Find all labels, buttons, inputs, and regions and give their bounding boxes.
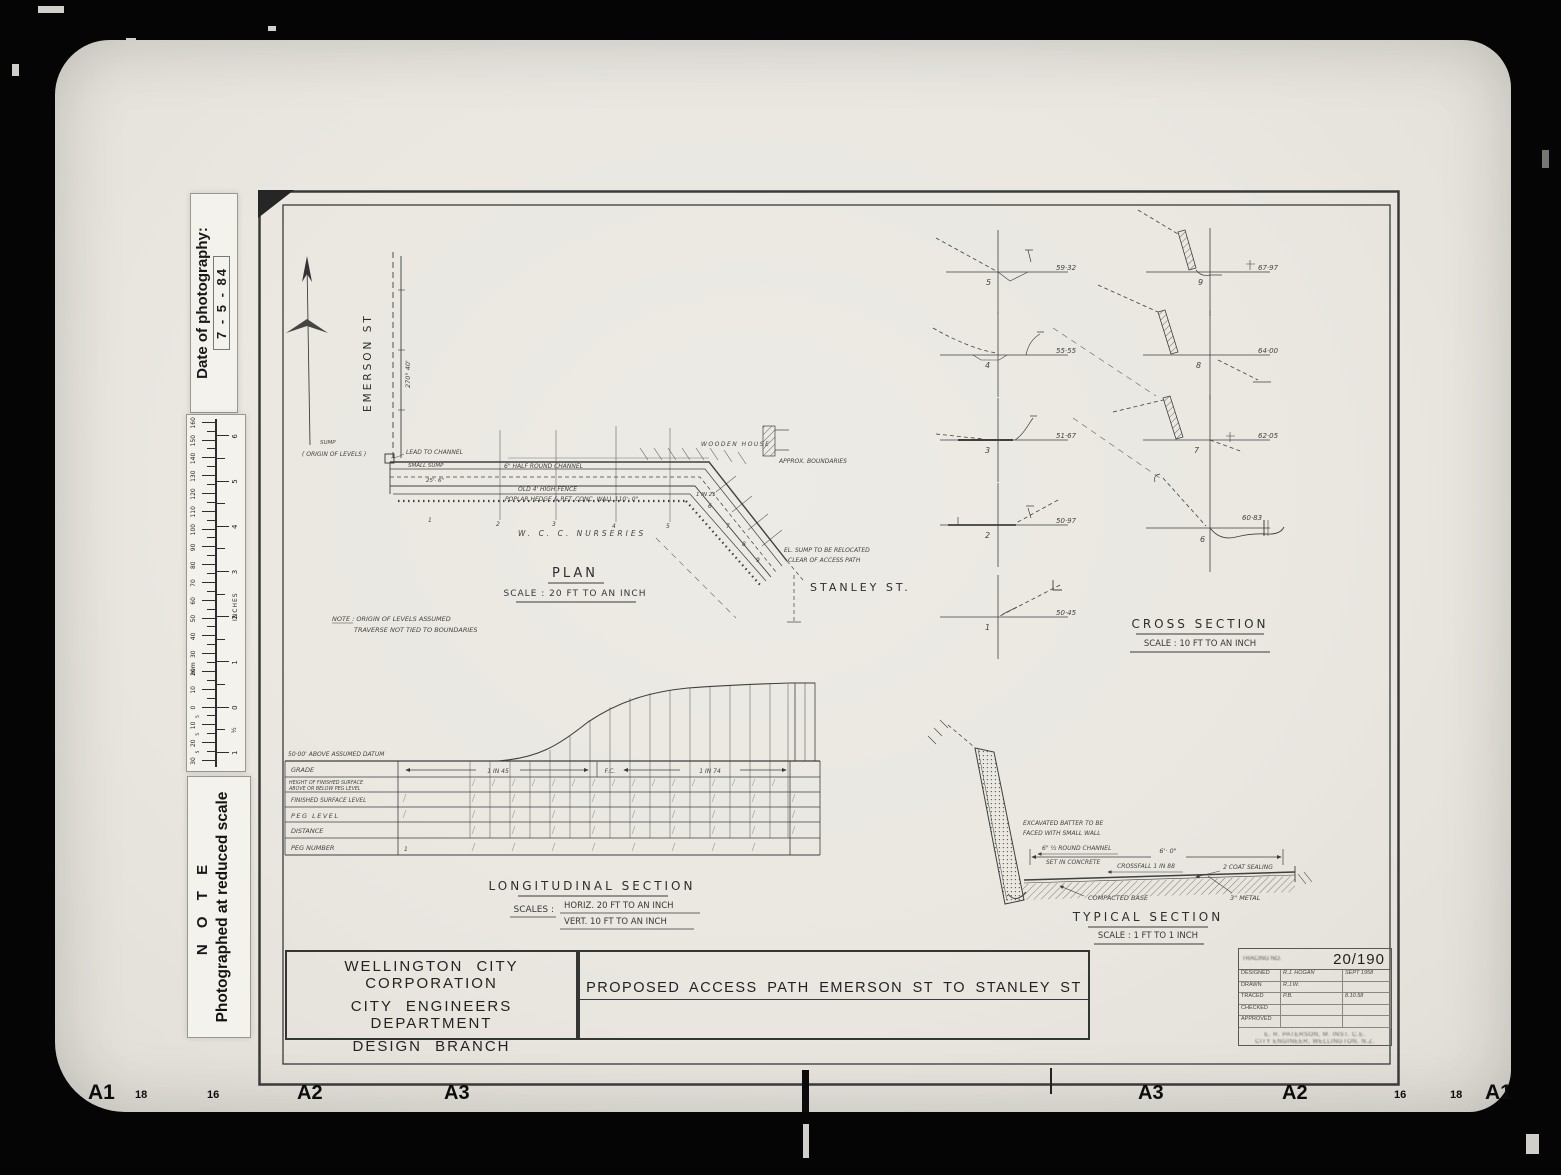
edge-marker: A2 — [1282, 1082, 1308, 1105]
ruler-tick — [207, 501, 215, 502]
ruler-tick: 4 — [231, 524, 239, 528]
plan-linework — [286, 252, 803, 622]
ruler-tick — [202, 760, 215, 761]
row-value: P.B. — [1281, 993, 1343, 1004]
ruler-tick: 2 — [231, 614, 239, 618]
ruler-tick — [202, 599, 215, 600]
row-label: CHECKED — [1239, 1005, 1281, 1016]
plan-labels: EMERSON ST 270° 40' SUMP ( ORIGIN OF LEV… — [302, 313, 911, 634]
ruler-tick — [207, 537, 215, 538]
wooden-house-label: WOODEN HOUSE — [701, 441, 770, 448]
emerson-st-label: EMERSON ST — [362, 313, 374, 412]
ruler-tick — [217, 729, 225, 730]
channel-label-2: SET IN CONCRETE — [1046, 859, 1101, 866]
sump-label: SUMP — [320, 440, 336, 446]
tracing-no-label: TRACING NO. — [1242, 956, 1333, 962]
plan-marker-9: 9 — [756, 557, 760, 564]
row-label: APPROVED — [1239, 1016, 1281, 1027]
cs9-no: 9 — [1198, 278, 1203, 287]
ruler-tick — [217, 616, 229, 617]
ruler-tick: 120 — [190, 488, 197, 499]
ruler-tick — [207, 590, 215, 591]
ruler-tick: 110 — [190, 506, 197, 517]
row-date: 8.10.58 — [1343, 993, 1391, 1004]
small-sump-label: SMALL SUMP — [408, 463, 444, 469]
edge-marker: A3 — [444, 1082, 470, 1105]
date-stamp-value: 7 - 5 - 84 — [213, 256, 230, 350]
ruler-tick — [207, 519, 215, 520]
edge-marker: A2 — [297, 1082, 323, 1105]
row-value — [1281, 1016, 1343, 1027]
longitudinal-text: 50·00' ABOVE ASSUMED DATUM GRADE HEIGHT … — [288, 751, 721, 929]
crossfall-label: CROSSFALL 1 IN 88 — [1117, 863, 1175, 870]
scale-ruler: mm INCHES 305205105010203040506070809010… — [185, 413, 246, 772]
ruler-tick: 5 — [196, 715, 201, 718]
row-value — [1281, 1005, 1343, 1016]
ruler-tick — [207, 555, 215, 556]
cs3-no: 3 — [985, 446, 990, 455]
sump-relocated-label-1: EL. SUMP TO BE RELOCATED — [784, 547, 870, 554]
tracing-row: TRACEDP.B.8.10.58 — [1239, 993, 1391, 1005]
ruler-tick: 5 — [231, 479, 239, 483]
cross-sections-text: 5 59·32 4 55·55 3 51·67 2 50·97 1 50·45 … — [985, 264, 1279, 652]
title-block-organisation: WELLINGTON CITY CORPORATION CITY ENGINEE… — [285, 950, 578, 1040]
sump-relocated-label-2: CLEAR OF ACCESS PATH — [788, 557, 861, 564]
ruler-tick: 70 — [190, 579, 197, 587]
longitudinal-linework — [285, 683, 820, 855]
ruler-tick — [217, 525, 229, 526]
typical-linework — [928, 720, 1312, 904]
ruler-tick: 50 — [190, 614, 197, 622]
row-label: TRACED — [1239, 993, 1281, 1004]
ruler-tick — [202, 564, 215, 565]
grade-1in74: 1 IN 74 — [699, 768, 721, 775]
plan-marker-3: 3 — [552, 521, 556, 528]
ruler-tick — [202, 493, 215, 494]
ruler-tick — [202, 421, 215, 422]
ruler-tick — [202, 724, 215, 725]
ruler-tick — [207, 430, 215, 431]
note-stamp-text: Photographed at reduced scale — [214, 777, 232, 1037]
org-line-2: CITY ENGINEERS DEPARTMENT — [287, 998, 576, 1032]
tracing-row: CHECKED — [1239, 1005, 1391, 1017]
batter-label-2: FACED WITH SMALL WALL — [1023, 830, 1101, 837]
ruler-tick — [207, 626, 215, 627]
note-stamp-title: N O T E — [194, 777, 211, 1037]
ruler-tick: 140 — [190, 452, 197, 463]
ruler-tick — [202, 653, 215, 654]
first-peg-number: 1 — [404, 846, 408, 853]
cross-section-scale: SCALE : 10 FT TO AN INCH — [1144, 639, 1256, 649]
ruler-tick — [202, 635, 215, 636]
corner-fold-mark — [258, 190, 294, 218]
ruler-tick: 0 — [190, 705, 197, 709]
ruler-tick: 0 — [231, 705, 239, 709]
org-line-3: DESIGN BRANCH — [287, 1038, 576, 1055]
edge-marker: 18 — [135, 1089, 147, 1101]
tracing-footer-2: CITY ENGINEER, WELLINGTON, N.Z. — [1239, 1039, 1391, 1045]
ruler-tick — [217, 548, 225, 549]
note-stamp: N O T E Photographed at reduced scale — [186, 776, 251, 1038]
ruler-tick: 10 — [190, 721, 197, 729]
ruler-tick — [217, 457, 225, 458]
ruler-tick: 5 — [196, 750, 201, 753]
longitudinal-scale-vert: VERT. 10 FT TO AN INCH — [564, 917, 667, 927]
ruler-tick — [202, 706, 215, 707]
old-fence-label: OLD 4' HIGH FENCE — [518, 486, 577, 493]
tracing-row: DRAWNR.J.W. — [1239, 982, 1391, 994]
row-peg-level: PEG LEVEL — [291, 812, 340, 820]
tracing-row: APPROVED — [1239, 1016, 1391, 1028]
tracing-footer-1: E. R. PATERSON, M. INST. C.E. — [1239, 1032, 1391, 1038]
row-peg-number: PEG NUMBER — [291, 844, 334, 852]
row-label: DRAWN — [1239, 982, 1281, 993]
photograph-paper: Date of photography: 7 - 5 - 84 mm INCHE… — [55, 40, 1511, 1112]
row-date — [1343, 982, 1391, 993]
base-label: COMPACTED BASE — [1088, 894, 1149, 902]
ruler-tick: 150 — [190, 434, 197, 445]
ruler-tick: 80 — [190, 561, 197, 569]
film-speck — [803, 1124, 809, 1158]
tracing-row: DESIGNEDR.J. HOGANSEPT 1958 — [1239, 970, 1391, 982]
ruler-tick: 40 — [190, 632, 197, 640]
cs9-level: 67·97 — [1258, 264, 1279, 272]
edge-marker: A1 — [88, 1081, 115, 1105]
grade-1in21-label: 1 IN 21 — [696, 492, 716, 498]
dim-25-label: 25'· 6" — [426, 478, 444, 484]
ruler-tick — [207, 644, 215, 645]
plan-marker-2: 2 — [496, 521, 500, 528]
cs4-no: 4 — [985, 361, 990, 370]
ruler-tick — [202, 546, 215, 547]
row-distance: DISTANCE — [291, 827, 324, 835]
plan-note-1: NOTE : ORIGIN OF LEVELS ASSUMED — [332, 615, 451, 623]
date-stamp: Date of photography: 7 - 5 - 84 — [190, 194, 238, 412]
ruler-edge — [215, 419, 217, 767]
cs4-level: 55·55 — [1056, 347, 1077, 355]
ruler-tick: 160 — [190, 417, 197, 428]
film-speck — [268, 26, 276, 31]
grade-fc: F.C. — [605, 768, 616, 775]
ruler-tick — [207, 662, 215, 663]
dim-6ft-label: 6'· 0" — [1159, 847, 1176, 855]
cs7-no: 7 — [1194, 446, 1200, 455]
ruler-tick: 90 — [190, 543, 197, 551]
ruler-tick — [207, 751, 215, 752]
edge-marker: A3 — [1138, 1082, 1164, 1105]
stanley-st-label: STANLEY ST. — [810, 581, 911, 594]
row-date: SEPT 1958 — [1343, 970, 1391, 981]
photographed-drawing: Date of photography: 7 - 5 - 84 mm INCHE… — [0, 0, 1561, 1175]
cs5-no: 5 — [986, 278, 991, 287]
metal-label: 3" METAL — [1230, 894, 1261, 902]
ruler-tick — [202, 439, 215, 440]
typical-title: TYPICAL SECTION — [1072, 910, 1223, 924]
channel-label-1: 6" ½ ROUND CHANNEL — [1042, 845, 1111, 852]
ruler-tick — [217, 503, 225, 504]
ruler-tick — [217, 751, 229, 752]
origin-of-levels-label: ( ORIGIN OF LEVELS ) — [302, 451, 366, 458]
typical-scale: SCALE : 1 FT TO 1 INCH — [1098, 931, 1198, 941]
ruler-tick — [202, 617, 215, 618]
cs6-no: 6 — [1200, 535, 1205, 544]
longitudinal-scales-label: SCALES : — [514, 905, 554, 915]
cs6-level: 60·83 — [1242, 514, 1262, 522]
ruler-tick — [207, 715, 215, 716]
date-stamp-label: Date of photography: — [194, 194, 211, 412]
ruler-tick — [217, 480, 229, 481]
edge-marker: 16 — [1394, 1089, 1406, 1101]
half-round-channel-label: 6" HALF ROUND CHANNEL — [504, 463, 583, 470]
datum-note: 50·00' ABOVE ASSUMED DATUM — [288, 751, 385, 758]
ruler-tick — [217, 570, 229, 571]
ruler-tick — [217, 638, 225, 639]
film-speck — [12, 64, 19, 76]
ruler-tick — [207, 573, 215, 574]
ruler-tick — [217, 435, 229, 436]
ruler-tick — [202, 671, 215, 672]
title-block-tracing: TRACING NO. 20/190 DESIGNEDR.J. HOGANSEP… — [1238, 948, 1392, 1046]
plan-title: PLAN — [552, 566, 598, 581]
ruler-tick — [202, 582, 215, 583]
row-label: DESIGNED — [1239, 970, 1281, 981]
ruler-tick: 10 — [190, 685, 197, 693]
plan-marker-5: 5 — [666, 523, 670, 530]
film-speck — [1526, 1134, 1539, 1154]
cs3-level: 51·67 — [1056, 432, 1077, 440]
org-line-1: WELLINGTON CITY CORPORATION — [287, 958, 576, 992]
nurseries-label: W. C. C. NURSERIES — [518, 529, 646, 538]
ruler-tick — [217, 661, 229, 662]
poplar-hedge-label: POPLAR HEDGE & RET. CONC. WALL 110'· 0" — [505, 496, 639, 503]
cs2-no: 2 — [985, 531, 990, 540]
grade-1in45: 1 IN 45 — [487, 768, 509, 775]
cs8-no: 8 — [1196, 361, 1201, 370]
film-speck — [38, 6, 64, 13]
ruler-tick — [207, 484, 215, 485]
ruler-tick: ½ — [231, 727, 238, 733]
edge-marker: 16 — [207, 1089, 219, 1101]
registration-tick-thin — [1050, 1068, 1052, 1094]
ruler-tick: 60 — [190, 596, 197, 604]
batter-label-1: EXCAVATED BATTER TO BE — [1023, 820, 1104, 827]
lead-to-channel-label: LEAD TO CHANNEL — [406, 449, 463, 456]
row-height-1: HEIGHT OF FINISHED SURFACE — [289, 780, 364, 786]
longitudinal-scale-horiz: HORIZ. 20 FT TO AN INCH — [564, 901, 674, 911]
plan-marker-8: 8 — [742, 541, 746, 548]
tracing-number: 20/190 — [1333, 951, 1385, 968]
edge-marker: A1 — [1485, 1081, 1512, 1105]
cs2-level: 50·97 — [1056, 517, 1077, 525]
ruler-tick: 1 — [231, 660, 239, 664]
ruler-tick: 100 — [190, 523, 197, 534]
drawing-title: PROPOSED ACCESS PATH EMERSON ST TO STANL… — [580, 980, 1088, 1000]
cs1-no: 1 — [985, 623, 990, 632]
row-date — [1343, 1016, 1391, 1027]
plan-marker-6: 6 — [708, 503, 712, 510]
bearing-label: 270° 40' — [404, 360, 412, 388]
row-grade: GRADE — [291, 766, 315, 774]
ruler-tick — [217, 593, 225, 594]
plan-marker-7: 7 — [726, 523, 730, 530]
row-fsl: FINISHED SURFACE LEVEL — [291, 798, 366, 804]
ruler-tick — [202, 528, 215, 529]
ruler-tick: 30 — [190, 650, 197, 658]
ruler-tick — [207, 697, 215, 698]
cs5-level: 59·32 — [1056, 264, 1077, 272]
title-block-drawing-title: PROPOSED ACCESS PATH EMERSON ST TO STANL… — [578, 950, 1090, 1040]
ruler-tick — [217, 706, 229, 707]
registration-tick — [802, 1070, 809, 1112]
plan-note-2: TRAVERSE NOT TIED TO BOUNDARIES — [354, 626, 478, 634]
ruler-tick: 3 — [231, 569, 239, 573]
ruler-tick — [217, 684, 225, 685]
cs1-level: 50·45 — [1056, 609, 1077, 617]
ruler-tick: 1 — [231, 750, 239, 754]
cs7-level: 62·05 — [1258, 432, 1279, 440]
ruler-tick — [202, 457, 215, 458]
edge-marker: 18 — [1450, 1089, 1462, 1101]
ruler-tick: 6 — [231, 434, 239, 438]
ruler-tick: 20 — [190, 668, 197, 676]
cs8-level: 64·00 — [1258, 347, 1279, 355]
ruler-tick: 5 — [196, 732, 201, 735]
approx-boundaries-label: APPROX. BOUNDARIES — [778, 458, 847, 465]
plan-scale: SCALE : 20 FT TO AN INCH — [504, 589, 647, 599]
ruler-tick — [202, 742, 215, 743]
plan-marker-4: 4 — [612, 523, 616, 530]
ruler-tick — [202, 475, 215, 476]
sealing-label: 2 COAT SEALING — [1223, 864, 1273, 871]
ruler-tick: 20 — [190, 739, 197, 747]
row-value: R.J.W. — [1281, 982, 1343, 993]
film-speck — [1542, 150, 1549, 168]
cross-section-title: CROSS SECTION — [1131, 617, 1268, 631]
ruler-tick — [202, 688, 215, 689]
ruler-tick — [207, 679, 215, 680]
row-value: R.J. HOGAN — [1281, 970, 1343, 981]
ruler-tick — [202, 510, 215, 511]
ruler-tick — [207, 608, 215, 609]
ruler-tick: 130 — [190, 470, 197, 481]
ruler-tick — [207, 733, 215, 734]
ruler-tick: 30 — [190, 757, 197, 765]
row-height-2: ABOVE OR BELOW PEG LEVEL — [288, 786, 361, 792]
longitudinal-title: LONGITUDINAL SECTION — [489, 879, 696, 893]
ruler-inner: mm INCHES 305205105010203040506070809010… — [186, 414, 246, 772]
plan-marker-1: 1 — [428, 517, 432, 524]
row-date — [1343, 1005, 1391, 1016]
ruler-tick — [207, 448, 215, 449]
ruler-tick — [207, 466, 215, 467]
